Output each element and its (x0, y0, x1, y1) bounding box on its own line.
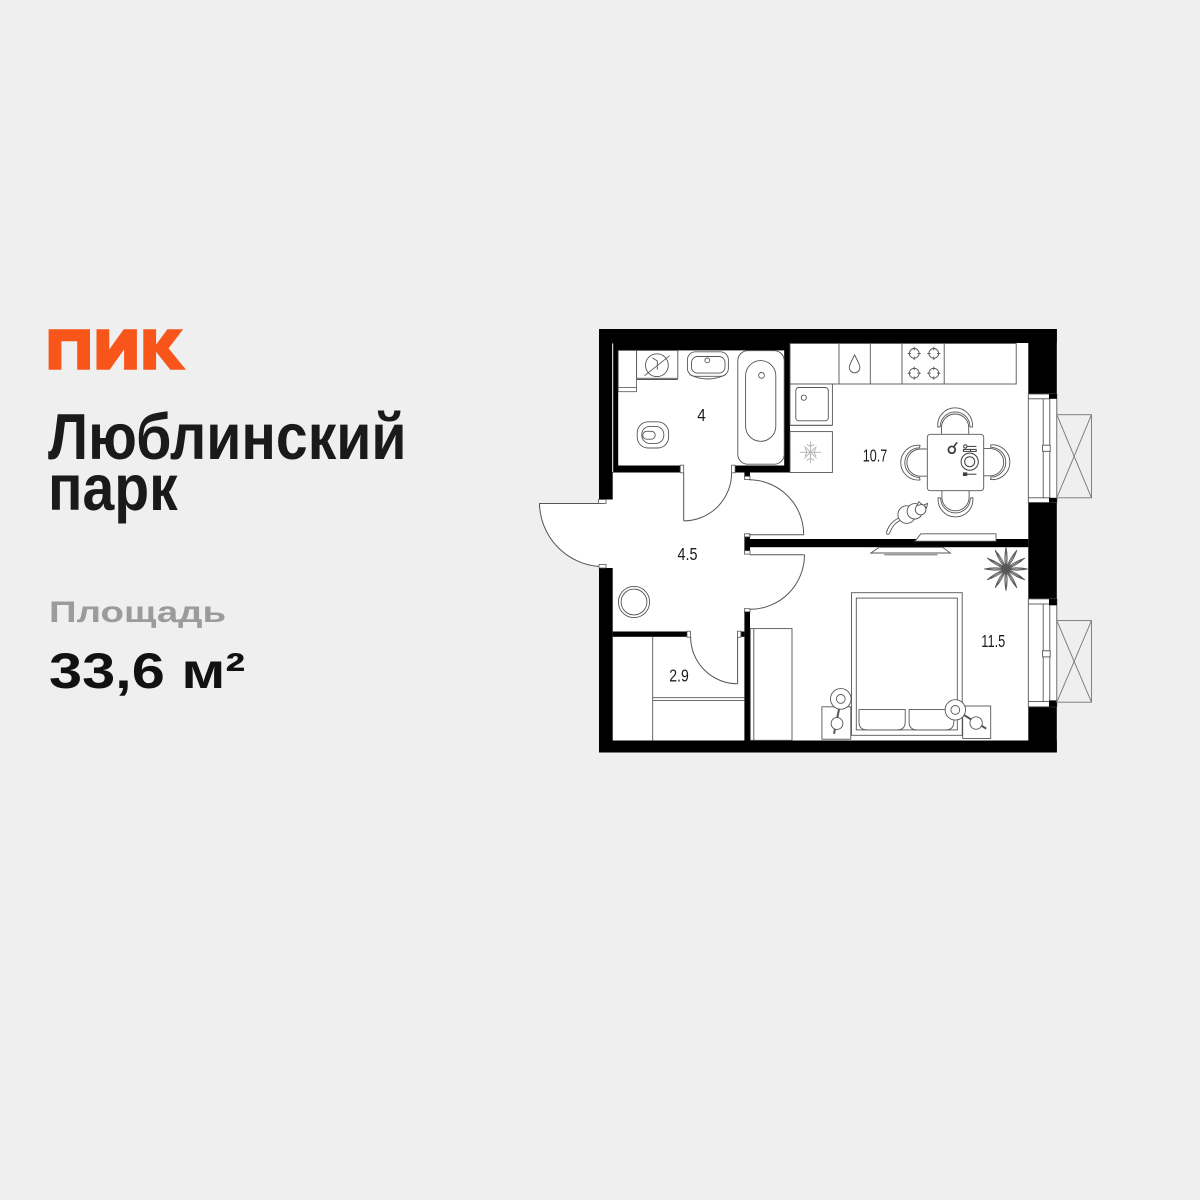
svg-text:4.5: 4.5 (678, 544, 698, 564)
svg-text:2.9: 2.9 (669, 666, 689, 686)
svg-text:4: 4 (697, 405, 706, 425)
svg-text:10.7: 10.7 (863, 446, 888, 466)
svg-text:11.5: 11.5 (981, 631, 1005, 651)
